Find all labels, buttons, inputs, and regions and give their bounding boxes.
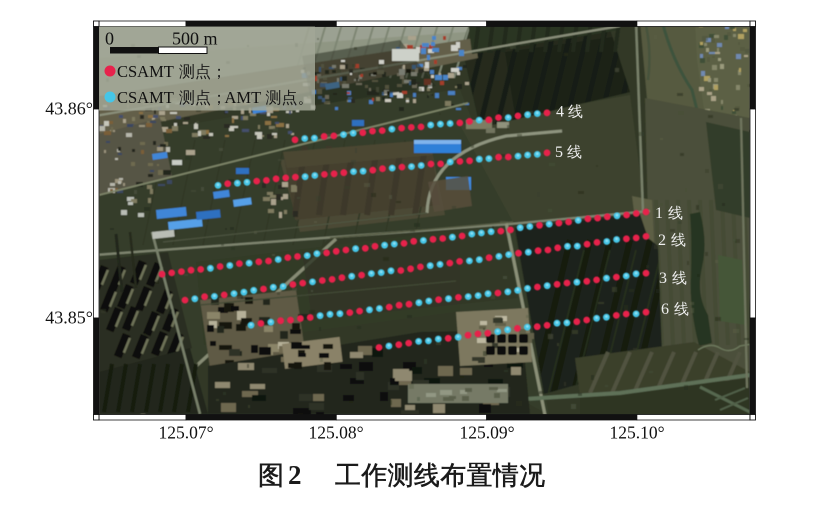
svg-text:CSAMT: CSAMT	[117, 88, 174, 107]
svg-text:125.07°: 125.07°	[158, 423, 213, 443]
svg-text:125.10°: 125.10°	[609, 423, 664, 443]
svg-text:500 m: 500 m	[172, 29, 218, 49]
svg-text:0: 0	[105, 29, 114, 49]
svg-text:6: 6	[661, 301, 669, 318]
svg-text:5: 5	[555, 144, 563, 161]
svg-text:43.86°: 43.86°	[45, 99, 93, 119]
svg-text:AMT: AMT	[225, 88, 262, 107]
svg-text:125.09°: 125.09°	[459, 423, 514, 443]
svg-text:2: 2	[658, 232, 666, 249]
svg-text:CSAMT: CSAMT	[117, 62, 174, 81]
svg-text:43.85°: 43.85°	[45, 308, 93, 328]
svg-text:2: 2	[288, 460, 302, 490]
svg-text:125.08°: 125.08°	[308, 423, 363, 443]
svg-text:1: 1	[655, 205, 663, 222]
svg-text:3: 3	[659, 270, 667, 287]
svg-text:4: 4	[556, 104, 564, 121]
